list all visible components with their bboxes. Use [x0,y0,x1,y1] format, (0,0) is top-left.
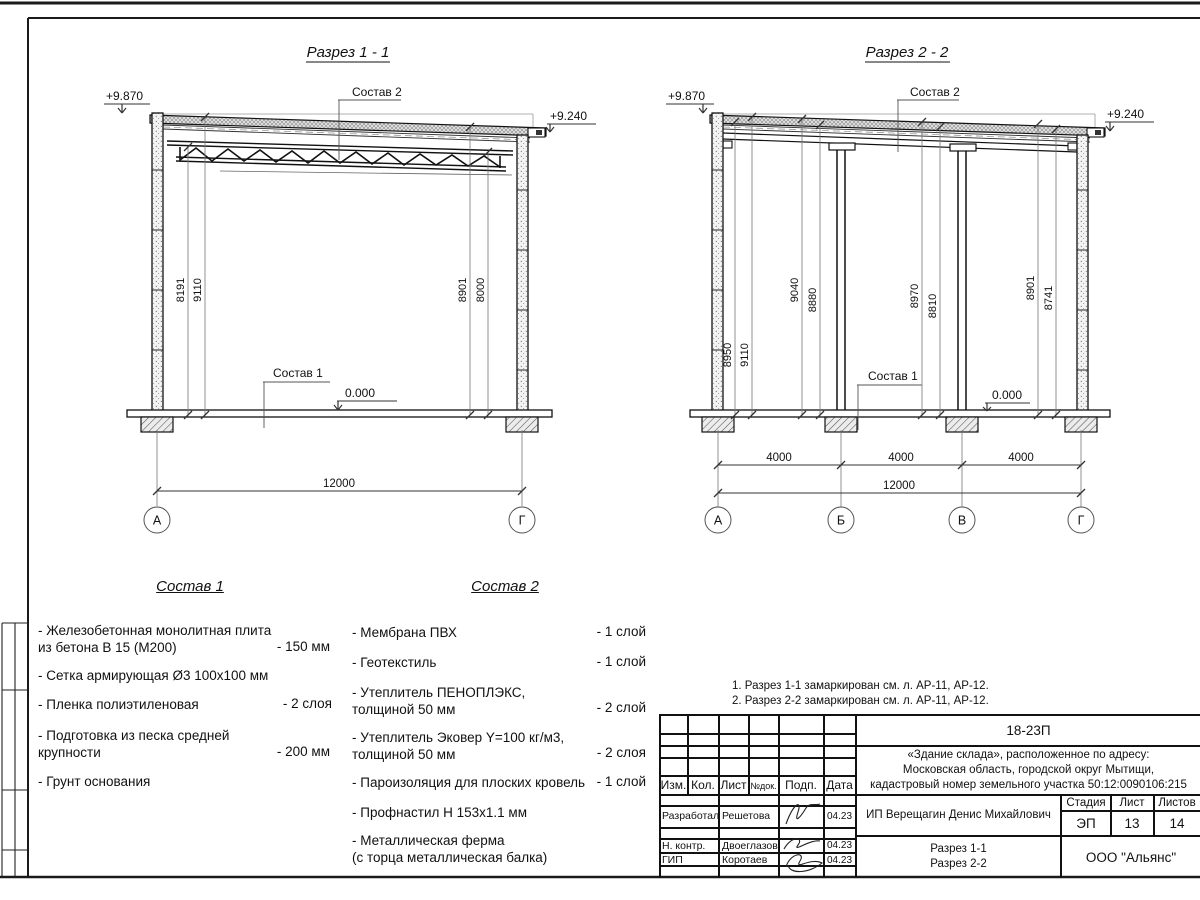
tb-client: ИП Верещагин Денис Михайлович [857,796,1060,834]
list-item-value: - 1 слой [586,774,646,789]
s2-dim-total: 12000 [883,480,915,492]
tb-stage-value: ЭП [1062,816,1110,831]
s2-elevation-floor: 0.000 [983,388,1030,411]
section-1-view: Разрез 1 - 1 [104,44,596,533]
list-item: - Геотекстиль [352,654,436,671]
tb-col-podp: Подп. [779,778,823,792]
s1-callout-roof-label: Состав 2 [352,85,402,99]
tb-company: ООО "Альянс" [1062,837,1200,877]
company-text: ООО "Альянс" [1086,850,1176,865]
section-1-title: Разрез 1 - 1 [307,44,390,61]
list-item-value: - 2 слоя [270,696,332,711]
tb-date-1: 04.23 [824,811,855,822]
tb-date-3: 04.23 [824,855,855,866]
tb-sheet-value: 13 [1111,816,1153,831]
list-item: - Утеплитель Эковер Y=100 кг/м3, толщино… [352,729,564,763]
s1-dim-total: 12000 [323,478,355,490]
s2-span-1: 4000 [766,452,792,464]
s2-dim-9110: 9110 [739,343,751,367]
s2-callout-floor: Состав 1 [857,369,922,430]
list-item: - Сетка армирующая Ø3 100х100 мм [38,667,268,684]
list-item: - Железобетонная монолитная плита из бет… [38,622,271,656]
s2-dim-8950: 8950 [722,343,734,367]
client-text: ИП Верещагин Денис Михайлович [866,809,1051,821]
section-2-title: Разрез 2 - 2 [866,44,949,61]
list-item-value: - 2 слоя [586,745,646,760]
section-2-view: Разрез 2 - 2 [666,44,1154,533]
s2-dim-8810: 8810 [927,294,939,318]
s2-dim-8901: 8901 [1025,276,1037,300]
s1-elevation-floor: 0.000 [334,386,397,410]
s2-dim-9040: 9040 [789,278,801,302]
list-item: - Пленка полиэтиленовая [38,696,199,713]
s2-dim-8880: 8880 [807,288,819,312]
list-item: - Металлическая ферма (с торца металличе… [352,832,547,866]
tb-role-2: Н. контр. [662,840,718,852]
s2-walls [712,113,1088,412]
sostav2-title: Состав 2 [445,578,565,595]
signature-2 [780,833,826,875]
note-line: 1. Разрез 1-1 замаркирован см. л. АР-11,… [732,679,989,694]
s2-dim-8970: 8970 [909,284,921,308]
s2-axis-b: Б [837,514,845,528]
s1-axis-g: Г [519,514,526,528]
tb-col-ndoc: №док. [749,781,778,791]
tb-stage-label: Стадия [1062,797,1110,809]
signature-1 [780,798,824,828]
sostav1-title: Состав 1 [130,578,250,595]
s2-elevation-right: +9.240 [1105,107,1154,131]
s2-callout-floor-label: Состав 1 [868,369,918,383]
tb-sheets-value: 14 [1154,816,1200,831]
notes: 1. Разрез 1-1 замаркирован см. л. АР-11,… [732,679,989,709]
s2-span-3: 4000 [1008,452,1034,464]
list-item-value: - 200 мм [270,744,330,759]
project-code-text: 18-23П [1006,723,1050,738]
s2-dim-8741: 8741 [1043,286,1055,310]
tb-col-izm: Изм. [659,778,688,792]
tb-sheets-label: Листов [1154,797,1200,809]
tb-col-data: Дата [824,778,855,792]
s1-truss [167,141,513,175]
s2-bottom-dims: 4000 4000 4000 12000 А Б В Г [705,430,1094,533]
s2-elevation-left: +9.870 [666,89,714,113]
tb-role-1: Разработал [662,810,718,822]
s1-axis-a: А [153,514,162,528]
s1-dim-9110: 9110 [192,278,204,302]
tb-doc-name: Разрез 1-1 Разрез 2-2 [857,837,1060,877]
list-item-value: - 2 слой [586,700,646,715]
s1-dim-8901: 8901 [457,278,469,302]
list-item: - Мембрана ПВХ [352,624,457,641]
s1-callout-floor: Состав 1 [263,366,330,428]
s2-axis-a: А [714,514,723,528]
s1-roof-slab [150,115,546,142]
s2-callout-roof-label: Состав 2 [910,85,960,99]
s2-elev-left-value: +9.870 [668,89,705,103]
tb-role-3: ГИП [662,854,718,866]
list-item-value: - 1 слой [586,654,646,669]
list-item: - Подготовка из песка средней крупности [38,727,229,761]
list-item-value: - 150 мм [270,639,330,654]
tb-name-3: Коротаев [722,854,782,866]
s2-axis-v: В [958,514,966,528]
list-item: - Утеплитель ПЕНОПЛЭКС, толщиной 50 мм [352,684,525,718]
object-description-text: «Здание склада», расположенное по адресу… [870,748,1187,793]
list-item: - Грунт основания [38,773,150,790]
s1-elev-right-value: +9.240 [550,109,587,123]
s2-roof-slab [710,115,1105,142]
s2-elev-floor-value: 0.000 [992,388,1022,402]
s1-elevation-left: +9.870 [104,89,150,113]
list-item: - Пароизоляция для плоских кровель [352,774,585,791]
s2-elev-right-value: +9.240 [1107,107,1144,121]
s2-axis-g: Г [1078,514,1085,528]
s1-dim-8000: 8000 [475,278,487,302]
drawing-sheet: Разрез 1 - 1 [0,0,1200,900]
s1-elev-left-value: +9.870 [106,89,143,103]
s2-span-2: 4000 [888,452,914,464]
doc-name-text: Разрез 1-1 Разрез 2-2 [930,842,986,872]
tb-col-list: Лист [719,778,748,792]
tb-name-2: Двоеглазов [722,840,782,852]
note-line: 2. Разрез 2-2 замаркирован см. л. АР-11,… [732,694,989,709]
tb-col-kol: Кол. [688,778,718,792]
tb-date-2: 04.23 [824,840,855,851]
tb-object-description: «Здание склада», расположенное по адресу… [857,747,1200,793]
s1-bottom-dims: 12000 А Г [144,430,535,533]
s1-dim-8191: 8191 [175,278,187,302]
list-item-value: - 1 слой [586,624,646,639]
list-item: - Профнастил Н 153х1.1 мм [352,804,527,821]
s1-elev-floor-value: 0.000 [345,386,375,400]
tb-name-1: Решетова [722,810,778,822]
s1-elevation-right: +9.240 [546,109,596,132]
tb-sheet-label: Лист [1111,797,1153,809]
s1-callout-floor-label: Состав 1 [273,366,323,380]
tb-project-code: 18-23П [857,716,1200,745]
